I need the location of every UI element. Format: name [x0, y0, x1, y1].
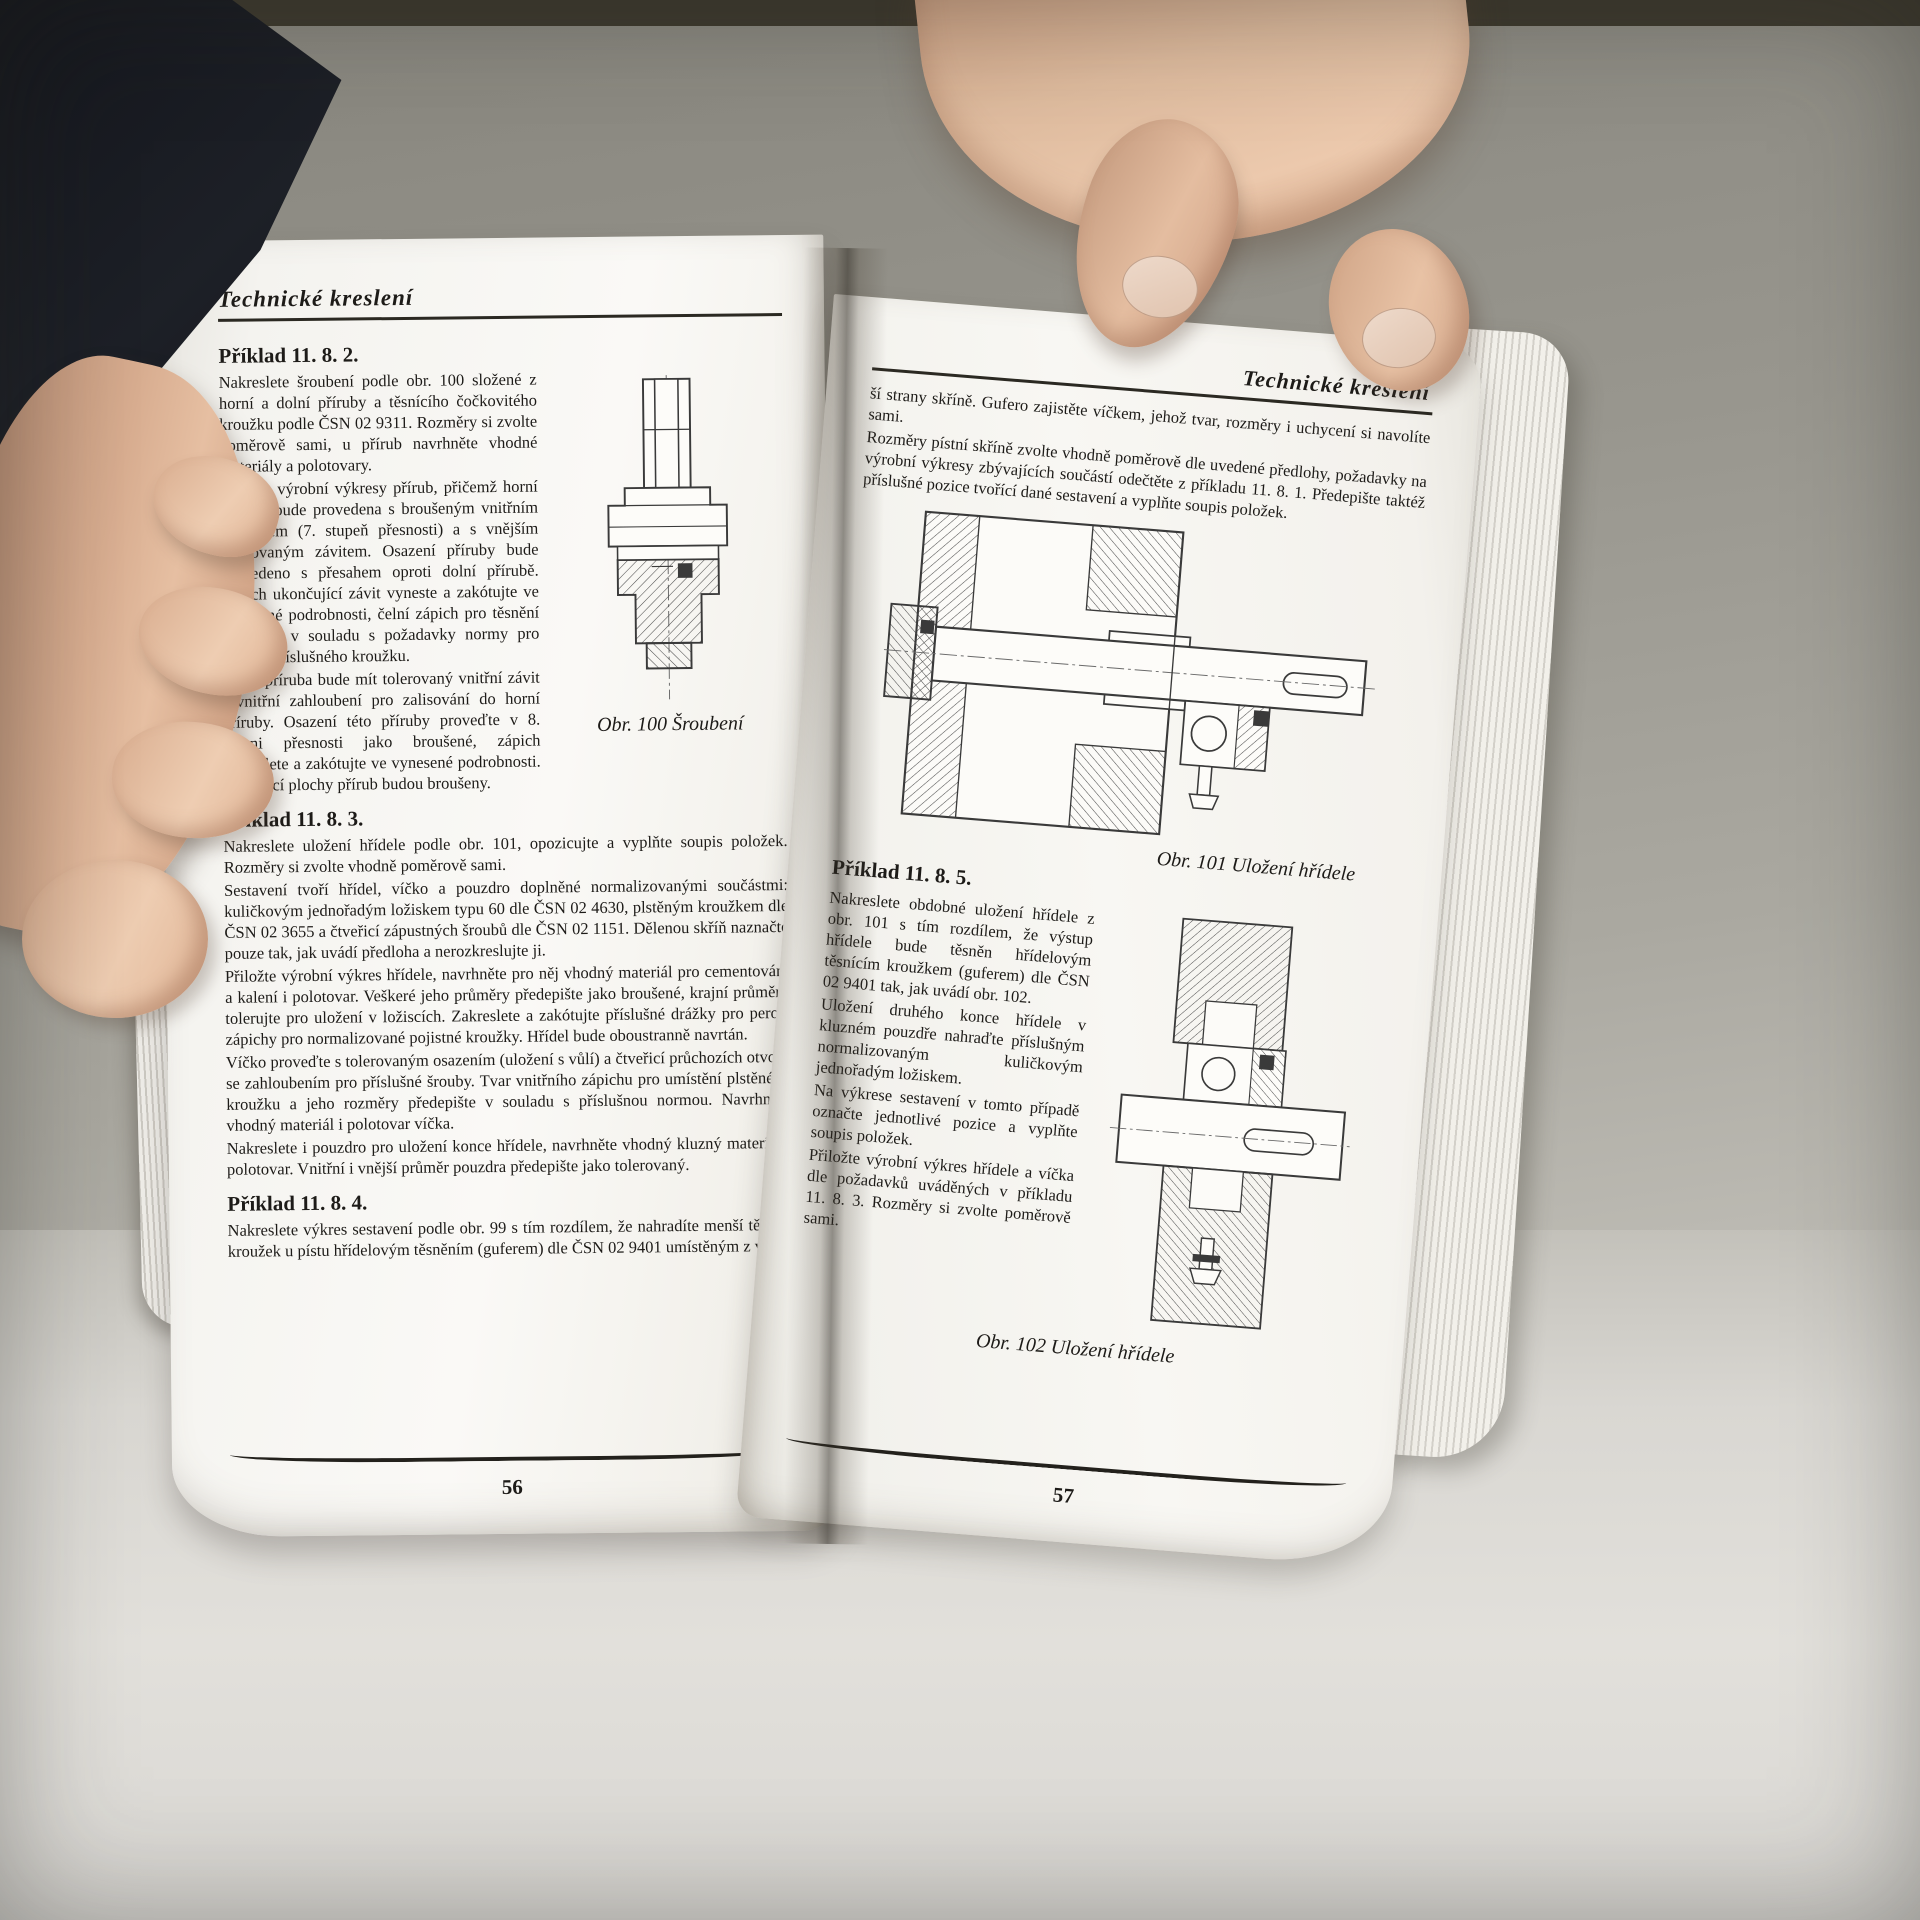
paragraph: Dolní příruba bude mít tolerovaný vnitřn… — [222, 667, 541, 796]
paragraph: Nakreslete uložení hřídele podle obr. 10… — [223, 830, 787, 878]
paragraph: Nakreslete šroubení podle obr. 100 slože… — [219, 369, 538, 477]
background-top-strip — [0, 0, 1920, 26]
two-column-block: Nakreslete šroubení podle obr. 100 slože… — [219, 366, 787, 798]
figure-column — [1071, 909, 1390, 1359]
figure-100-caption: Obr. 100 Šroubení — [597, 712, 744, 737]
section-heading-11-8-4: Příklad 11. 8. 4. — [227, 1186, 791, 1217]
paragraph: Víčko proveďte s tolerovaným osazením (u… — [226, 1046, 791, 1136]
figure-101-wrap — [836, 499, 1422, 861]
book-page-right: Technické kreslení ší strany skříně. Guf… — [736, 294, 1484, 1568]
paragraph: Sestavení tvoří hřídel, víčko a pouzdro … — [224, 874, 789, 964]
paragraph: Přiložte výrobní výkresy přírub, přičemž… — [220, 476, 540, 668]
left-header-rule — [218, 313, 782, 322]
section-heading-11-8-3: Příklad 11. 8. 3. — [223, 802, 787, 833]
left-footer-rule — [230, 1440, 794, 1464]
left-running-head: Technické kreslení — [218, 281, 782, 313]
two-column-block: Nakreslete obdobné uložení hřídele z obr… — [796, 887, 1391, 1359]
section-heading-11-8-2: Příklad 11. 8. 2. — [218, 338, 782, 369]
figure-101-drawing — [857, 501, 1401, 860]
paragraph: Nakreslete i pouzdro pro uložení konce h… — [227, 1132, 791, 1180]
left-page-footer: 56 — [230, 1440, 795, 1537]
left-page-number: 56 — [230, 1472, 794, 1503]
figure-100-drawing — [561, 372, 776, 704]
paragraph: Přiložte výrobní výkres hřídele, navrhně… — [225, 960, 790, 1050]
photo-scene: Technické kreslení Příklad 11. 8. 2. Nak… — [0, 0, 1920, 1920]
figure-102-drawing — [1078, 909, 1383, 1357]
paragraph: Nakreslete obdobné uložení hřídele z obr… — [822, 887, 1096, 1013]
paragraph: Nakreslete výkres sestavení podle obr. 9… — [227, 1214, 791, 1262]
text-column: Nakreslete obdobné uložení hřídele z obr… — [796, 887, 1095, 1335]
text-column: Nakreslete šroubení podle obr. 100 slože… — [219, 369, 541, 798]
book-page-left: Technické kreslení Příklad 11. 8. 2. Nak… — [159, 235, 837, 1538]
figure-column: Obr. 100 Šroubení — [551, 366, 787, 794]
